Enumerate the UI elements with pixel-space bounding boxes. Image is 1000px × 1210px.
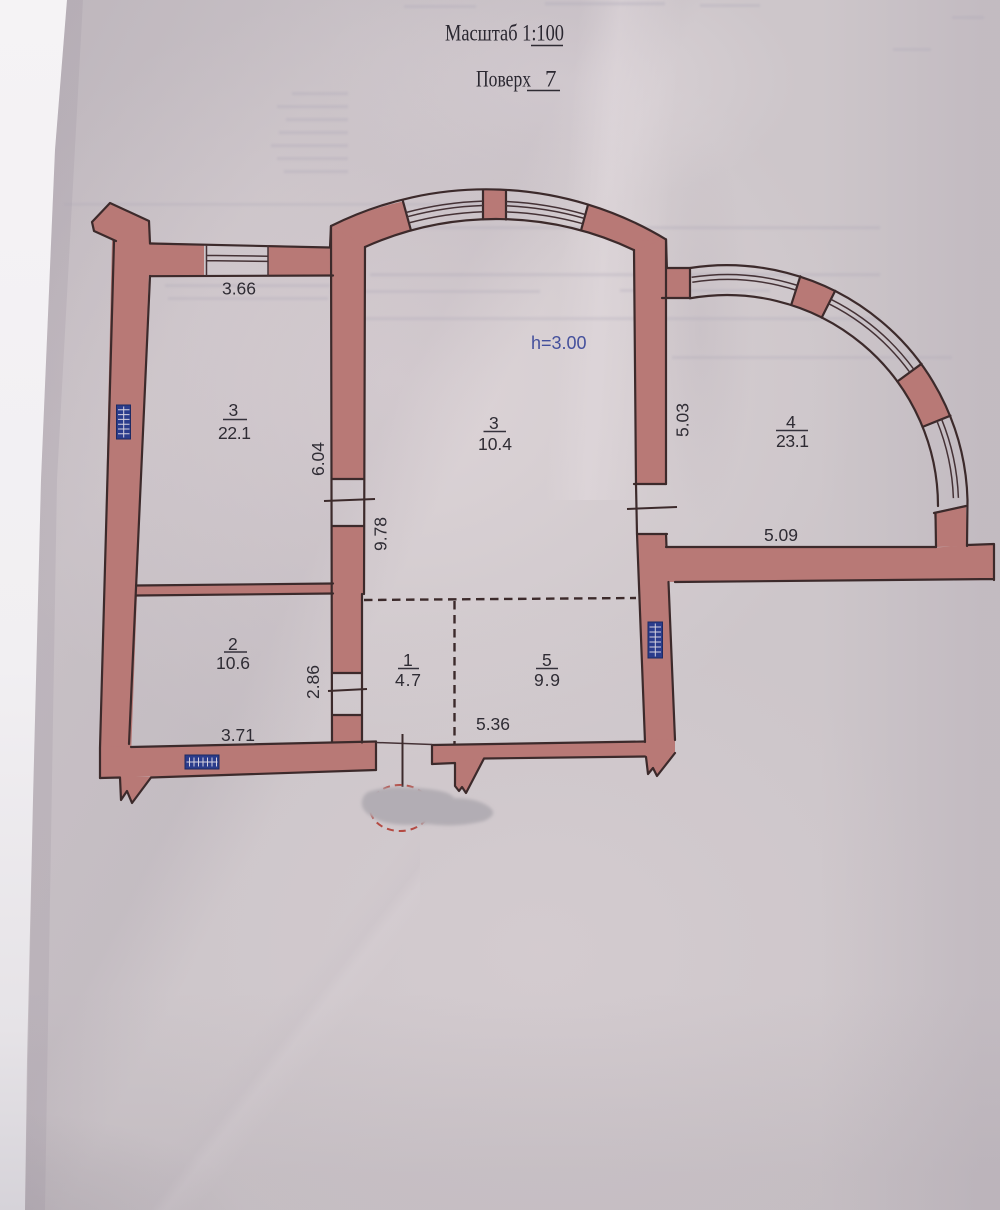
svg-text:6.04: 6.04 <box>308 442 328 476</box>
svg-text:Масштаб 1:100: Масштаб 1:100 <box>445 21 564 46</box>
svg-text:3: 3 <box>229 400 239 420</box>
svg-text:22.1: 22.1 <box>218 423 251 443</box>
svg-text:5.36: 5.36 <box>476 714 510 734</box>
svg-text:Поверх: Поверх <box>476 67 531 92</box>
svg-text:4.7: 4.7 <box>395 670 421 690</box>
svg-text:23.1: 23.1 <box>776 431 809 451</box>
svg-text:7: 7 <box>545 67 557 92</box>
svg-text:9.78: 9.78 <box>371 517 391 551</box>
svg-text:1: 1 <box>403 650 413 670</box>
svg-text:2: 2 <box>228 634 238 654</box>
svg-text:5.09: 5.09 <box>764 525 798 545</box>
svg-text:2.86: 2.86 <box>303 665 323 699</box>
svg-text:3.71: 3.71 <box>221 725 255 745</box>
svg-text:3: 3 <box>489 413 499 433</box>
svg-text:h=3.00: h=3.00 <box>531 333 587 353</box>
svg-text:10.6: 10.6 <box>216 653 250 673</box>
svg-text:4: 4 <box>786 412 796 432</box>
svg-text:5: 5 <box>542 650 552 670</box>
svg-text:9.9: 9.9 <box>534 670 560 690</box>
svg-text:5.03: 5.03 <box>673 403 693 437</box>
svg-text:3.66: 3.66 <box>222 279 256 299</box>
svg-text:10.4: 10.4 <box>478 434 512 454</box>
